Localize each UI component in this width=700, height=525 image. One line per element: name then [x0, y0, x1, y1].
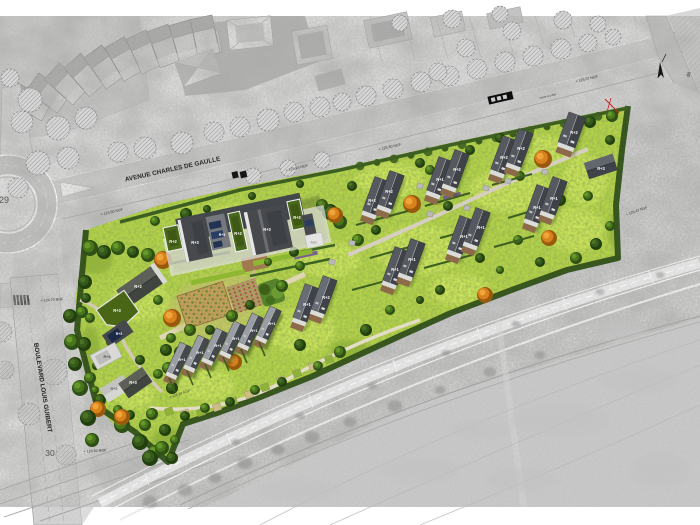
svg-text:R+3: R+3 [597, 166, 605, 171]
svg-text:R+1: R+1 [196, 350, 204, 355]
svg-text:R+3: R+3 [129, 380, 137, 385]
svg-text:R+3: R+3 [113, 308, 121, 313]
svg-text:R+2: R+2 [169, 239, 177, 244]
svg-text:R+1: R+1 [214, 343, 222, 348]
svg-text:R+1: R+1 [460, 234, 468, 239]
svg-text:R+1: R+1 [550, 196, 558, 201]
svg-text:R+1: R+1 [436, 177, 444, 182]
svg-text:R+1: R+1 [408, 257, 416, 262]
svg-text:R+3: R+3 [219, 233, 226, 237]
svg-text:R+2: R+2 [134, 284, 142, 289]
svg-text:R+1: R+1 [178, 357, 186, 362]
svg-text:R+3: R+3 [116, 332, 123, 336]
svg-text:R+1: R+1 [232, 336, 240, 341]
svg-text:R+1: R+1 [533, 205, 541, 210]
svg-text:R+2: R+2 [517, 146, 525, 151]
svg-text:R+2: R+2 [234, 231, 242, 236]
svg-text:R+1: R+1 [477, 225, 485, 230]
svg-text:R+1: R+1 [268, 321, 276, 326]
svg-text:R+1: R+1 [303, 302, 311, 307]
svg-text:R+1: R+1 [250, 328, 258, 333]
svg-text:R+2: R+2 [453, 167, 461, 172]
svg-text:R+2: R+2 [322, 295, 330, 300]
svg-text:R+2: R+2 [385, 189, 393, 194]
svg-text:R+3: R+3 [191, 240, 199, 245]
svg-text:R+1: R+1 [391, 267, 399, 272]
svg-text:R+3: R+3 [263, 227, 271, 232]
svg-text:R+2: R+2 [500, 155, 508, 160]
svg-text:30: 30 [45, 448, 55, 458]
svg-text:R+3: R+3 [103, 355, 110, 359]
svg-text:ROC: ROC [311, 241, 319, 245]
svg-text:R+2: R+2 [368, 198, 376, 203]
svg-text:R+2: R+2 [570, 130, 578, 135]
svg-text:R+2: R+2 [110, 387, 117, 391]
svg-text:29: 29 [0, 195, 9, 205]
svg-text:R+2: R+2 [293, 215, 301, 220]
